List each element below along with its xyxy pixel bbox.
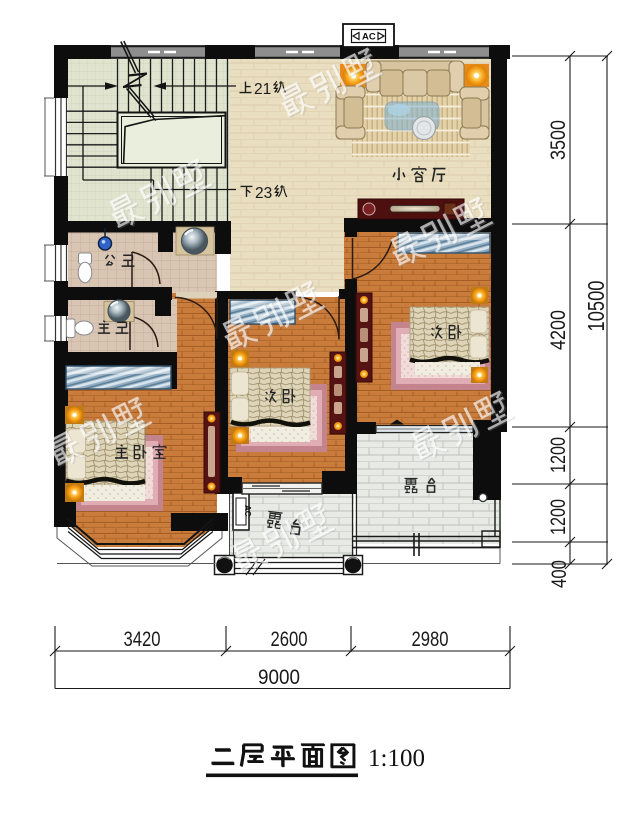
svg-text:3500: 3500 — [547, 120, 570, 160]
svg-text:9000: 9000 — [258, 666, 300, 689]
svg-text:3420: 3420 — [124, 628, 161, 651]
svg-text:AC: AC — [362, 32, 376, 43]
svg-text:4200: 4200 — [547, 310, 570, 350]
svg-text:2980: 2980 — [412, 628, 449, 651]
svg-text:21: 21 — [254, 81, 271, 98]
svg-text:400: 400 — [548, 560, 571, 588]
svg-text:1200: 1200 — [547, 499, 570, 535]
svg-text:1:100: 1:100 — [368, 745, 425, 772]
svg-text:10500: 10500 — [583, 281, 609, 332]
svg-text:AC: AC — [243, 505, 252, 517]
svg-text:23: 23 — [255, 185, 272, 202]
svg-text:1200: 1200 — [547, 437, 570, 473]
svg-text:2600: 2600 — [271, 628, 308, 651]
